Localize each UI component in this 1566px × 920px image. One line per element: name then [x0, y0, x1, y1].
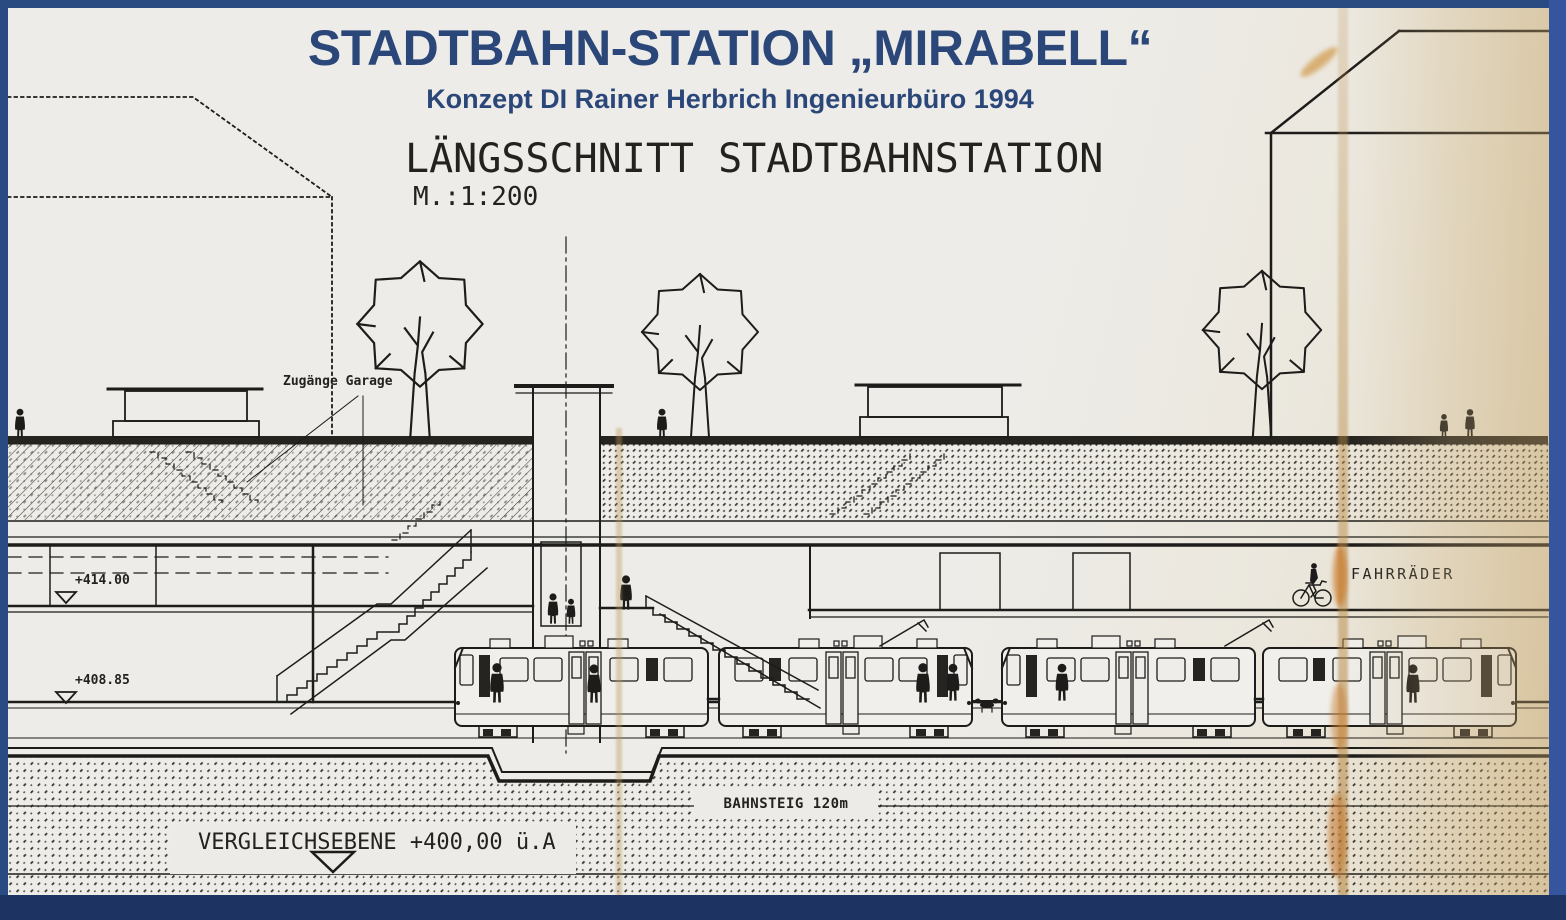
frame-bottom-band	[0, 895, 1566, 920]
tree-icon	[1203, 271, 1321, 437]
pedestrian-figure	[620, 575, 632, 609]
pedestrian-figure	[1440, 414, 1448, 438]
pedestrian-figure	[548, 593, 558, 623]
label-level-414: +414.00	[75, 573, 130, 588]
label-bicycles: FAHRRÄDER	[1351, 565, 1455, 583]
label-platform-length: BAHNSTEIG 120m	[694, 789, 878, 819]
cyclist-figure	[1293, 563, 1331, 606]
drawing-title: LÄNGSSCHNITT STADTBAHNSTATION	[405, 136, 1103, 182]
pedestrian-figure	[15, 409, 25, 438]
scanned-drawing-frame: STADTBAHN-STATION „MIRABELL“ Konzept DI …	[0, 0, 1566, 920]
label-garage-access: Zugänge Garage	[283, 374, 393, 389]
concourse-level	[810, 545, 1130, 618]
label-datum-plane: VERGLEICHSEBENE +400,00 ü.A	[170, 825, 576, 874]
train-car	[1002, 636, 1255, 737]
garage-entrance-pavilion	[108, 389, 262, 437]
train	[455, 620, 1516, 737]
tree-icon	[357, 261, 482, 437]
pedestrian-figure	[567, 599, 576, 624]
title-block: STADTBAHN-STATION „MIRABELL“ Konzept DI …	[8, 22, 1460, 115]
drawing-scale: M.:1:200	[413, 182, 538, 212]
datum-text: VERGLEICHSEBENE +400,00 ü.A	[198, 830, 556, 855]
pedestrian-figure	[1465, 409, 1474, 437]
garage-entrance-pavilion	[856, 385, 1020, 437]
label-level-408: +408.85	[75, 673, 130, 688]
page-title: STADTBAHN-STATION „MIRABELL“	[8, 22, 1460, 75]
frame-right-band	[1549, 0, 1566, 920]
elevator-cab	[541, 542, 581, 626]
pantograph-icon	[1225, 620, 1273, 646]
page-subtitle: Konzept DI Rainer Herbrich Ingenieurbüro…	[8, 84, 1460, 115]
level-marker-414	[56, 592, 76, 603]
datum-triangle-icon	[308, 850, 358, 874]
drawing-canvas: STADTBAHN-STATION „MIRABELL“ Konzept DI …	[8, 8, 1549, 895]
drawing-paper: STADTBAHN-STATION „MIRABELL“ Konzept DI …	[8, 8, 1549, 895]
train-car	[719, 636, 972, 737]
train-car	[1263, 636, 1516, 737]
pedestrian-figure	[657, 409, 667, 438]
